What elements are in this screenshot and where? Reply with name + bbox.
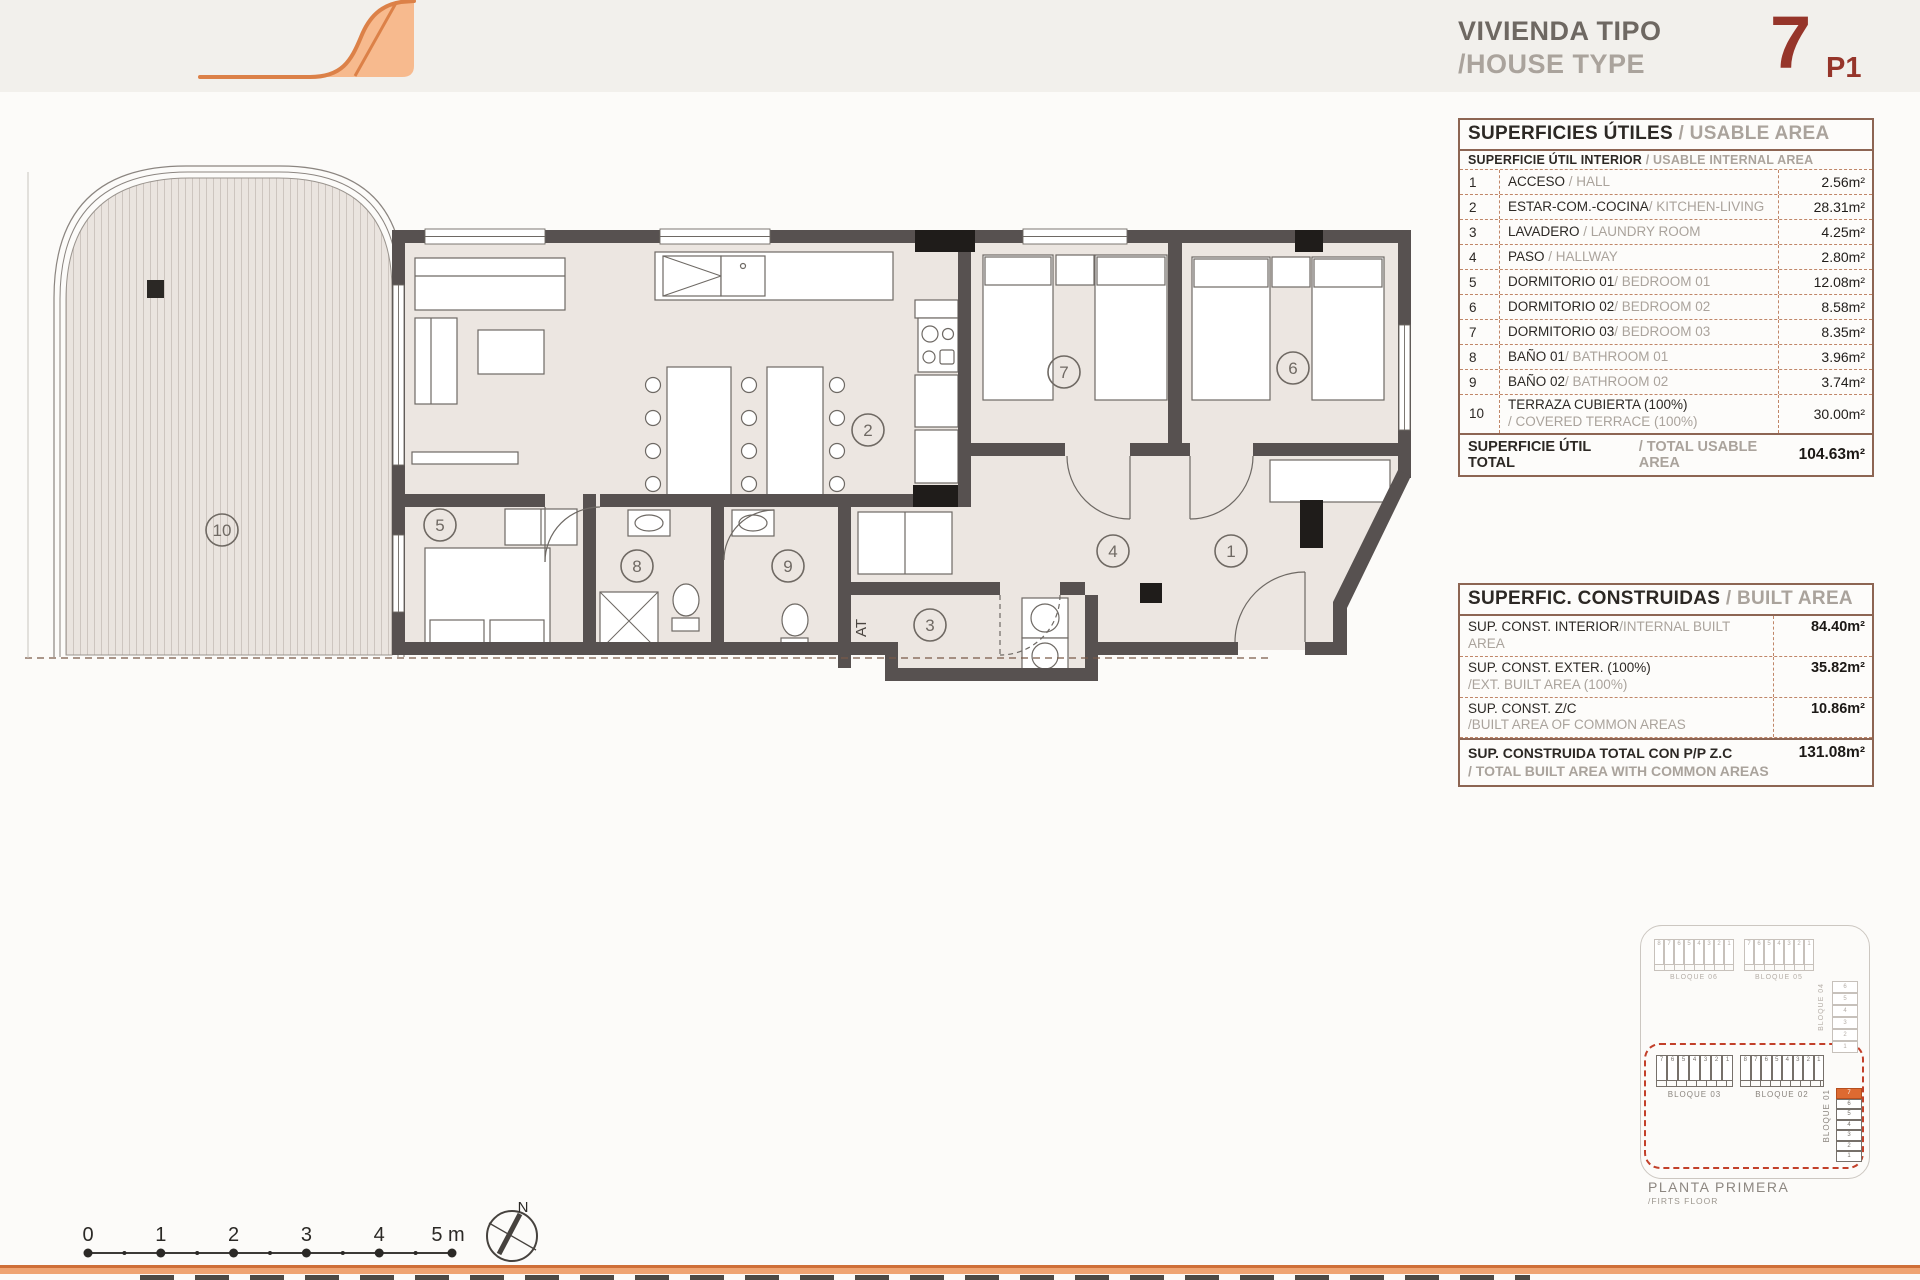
- usable-area-row: 6 DORMITORIO 02/ BEDROOM 02 8.58m²: [1460, 295, 1872, 320]
- block-04-label: BLOQUE 04: [1818, 983, 1825, 1031]
- block-04: 654321: [1832, 981, 1858, 1053]
- terrace: [54, 166, 404, 657]
- svg-text:6: 6: [1288, 359, 1297, 378]
- washing-machines: [1022, 598, 1068, 674]
- scale-bar: 0 1 2 3 4 5 m: [82, 1224, 464, 1258]
- house-type-floor-code: P1: [1826, 52, 1861, 85]
- block-01: 7654321: [1836, 1088, 1862, 1162]
- block-06: 87654321 BLOQUE 06: [1654, 939, 1734, 981]
- block-01-label: BLOQUE 01: [1822, 1089, 1831, 1142]
- usable-area-table: SUPERFICIES ÚTILES / USABLE AREA SUPERFI…: [1458, 118, 1874, 477]
- usable-area-row: 2 ESTAR-COM.-COCINA/ KITCHEN-LIVING 28.3…: [1460, 195, 1872, 220]
- footer-rule-light: [0, 1268, 1920, 1274]
- usable-area-row: 4 PASO / HALLWAY 2.80m²: [1460, 245, 1872, 270]
- house-type-title-en: /HOUSE TYPE: [1458, 49, 1645, 80]
- built-area-total-row: SUP. CONSTRUIDA TOTAL CON P/P Z.C/ TOTAL…: [1460, 738, 1872, 784]
- usable-table-subheader: SUPERFICIE ÚTIL INTERIOR / USABLE INTERN…: [1460, 151, 1872, 170]
- svg-text:5 m: 5 m: [431, 1224, 464, 1246]
- svg-text:8: 8: [632, 557, 641, 576]
- svg-text:4: 4: [374, 1224, 385, 1246]
- built-area-row: SUP. CONST. EXTER. (100%)/EXT. BUILT ARE…: [1460, 657, 1872, 698]
- site-plan-caption: PLANTA PRIMERA: [1648, 1179, 1789, 1195]
- usable-area-row: 1 ACCESO / HALL 2.56m²: [1460, 170, 1872, 195]
- terrace-column: [147, 280, 164, 298]
- svg-text:0: 0: [82, 1224, 93, 1246]
- svg-text:7: 7: [1059, 363, 1068, 382]
- built-area-row: SUP. CONST. Z/C/BUILT AREA OF COMMON ARE…: [1460, 698, 1872, 739]
- usable-area-row: 10 TERRAZA CUBIERTA (100%)/ COVERED TERR…: [1460, 395, 1872, 433]
- block-03: 7654321 BLOQUE 03: [1656, 1055, 1733, 1099]
- usable-area-total-row: SUPERFICIE ÚTIL TOTAL / TOTAL USABLE ARE…: [1460, 433, 1872, 475]
- house-type-title-es: VIVIENDA TIPO: [1458, 16, 1662, 47]
- usable-area-row: 9 BAÑO 02/ BATHROOM 02 3.74m²: [1460, 370, 1872, 395]
- usable-table-header: SUPERFICIES ÚTILES / USABLE AREA: [1460, 120, 1872, 151]
- usable-area-row: 5 DORMITORIO 01/ BEDROOM 01 12.08m²: [1460, 270, 1872, 295]
- svg-text:4: 4: [1108, 542, 1117, 561]
- block-02: 87654321 BLOQUE 02: [1740, 1055, 1824, 1099]
- usable-area-row: 8 BAÑO 01/ BATHROOM 01 3.96m²: [1460, 345, 1872, 370]
- built-area-row: SUP. CONST. INTERIOR/INTERNAL BUILT AREA…: [1460, 616, 1872, 657]
- svg-text:9: 9: [783, 557, 792, 576]
- usable-area-row: 3 LAVADERO / LAUNDRY ROOM 4.25m²: [1460, 220, 1872, 245]
- bedroom3-window: [1023, 229, 1127, 244]
- svg-text:1: 1: [1226, 542, 1235, 561]
- bedroom2-window: [1399, 325, 1410, 430]
- svg-text:3: 3: [301, 1224, 312, 1246]
- terrace-slider: [393, 285, 404, 465]
- built-table-header: SUPERFIC. CONSTRUIDAS / BUILT AREA: [1460, 585, 1872, 616]
- north-compass-icon: N: [487, 1199, 537, 1261]
- site-plan-caption-en: /FIRTS FLOOR: [1648, 1196, 1718, 1206]
- svg-text:5: 5: [435, 516, 444, 535]
- usable-area-row: 7 DORMITORIO 03/ BEDROOM 03 8.35m²: [1460, 320, 1872, 345]
- kitchen-window: [660, 229, 770, 244]
- built-area-table: SUPERFIC. CONSTRUIDAS / BUILT AREA SUP. …: [1458, 583, 1874, 787]
- logo: [200, 1, 414, 77]
- house-type-number: 7: [1770, 6, 1811, 80]
- svg-text:N: N: [518, 1199, 529, 1216]
- site-key-plan: 87654321 BLOQUE 06 7654321 BLOQUE 05 BLO…: [1640, 925, 1870, 1207]
- living-window: [425, 229, 545, 244]
- bedroom1-window: [393, 535, 404, 612]
- water-heater-label: AT: [853, 619, 870, 637]
- block-05: 7654321 BLOQUE 05: [1744, 939, 1814, 981]
- svg-text:3: 3: [925, 616, 934, 635]
- svg-text:10: 10: [213, 521, 232, 540]
- svg-text:2: 2: [863, 421, 872, 440]
- hall-closet: [1270, 460, 1390, 502]
- svg-text:2: 2: [228, 1224, 239, 1246]
- svg-text:1: 1: [155, 1224, 166, 1246]
